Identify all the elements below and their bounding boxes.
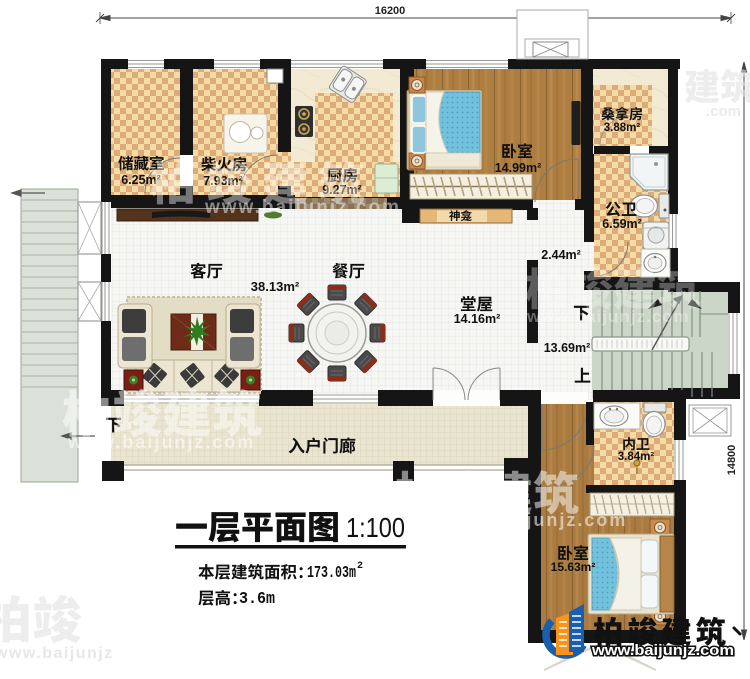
svg-text:1:100: 1:100 — [346, 512, 405, 543]
svg-text:www.baijunjz.com: www.baijunjz.com — [204, 197, 401, 218]
svg-text:2: 2 — [357, 561, 363, 572]
svg-text:173.03m: 173.03m — [307, 564, 356, 583]
svg-text:13.69m²: 13.69m² — [544, 341, 591, 355]
svg-text:3.88m²: 3.88m² — [604, 122, 641, 134]
svg-text:www.baijunjz.com: www.baijunjz.com — [67, 432, 255, 452]
svg-text:14.99m²: 14.99m² — [495, 161, 542, 175]
svg-text:www.baijunjz.com: www.baijunjz.com — [526, 307, 690, 326]
svg-text:15.63m²: 15.63m² — [551, 560, 596, 574]
svg-text:38.13m²: 38.13m² — [251, 279, 300, 294]
svg-text:.com: .com — [706, 103, 741, 120]
svg-text:www.baijunjz.com: www.baijunjz.com — [591, 642, 734, 659]
svg-text:2.44m²: 2.44m² — [541, 248, 581, 262]
svg-text:6.59m²: 6.59m² — [602, 217, 642, 231]
svg-text:14.16m²: 14.16m² — [454, 312, 501, 326]
svg-text:www.baijunjz: www.baijunjz — [0, 645, 114, 662]
svg-text:3.6m: 3.6m — [239, 590, 275, 609]
svg-text:www.baijunjz.com: www.baijunjz.com — [439, 510, 627, 530]
svg-text:3.84m²: 3.84m² — [618, 451, 655, 463]
svg-text:16200: 16200 — [375, 5, 406, 17]
svg-text:14800: 14800 — [726, 445, 738, 476]
